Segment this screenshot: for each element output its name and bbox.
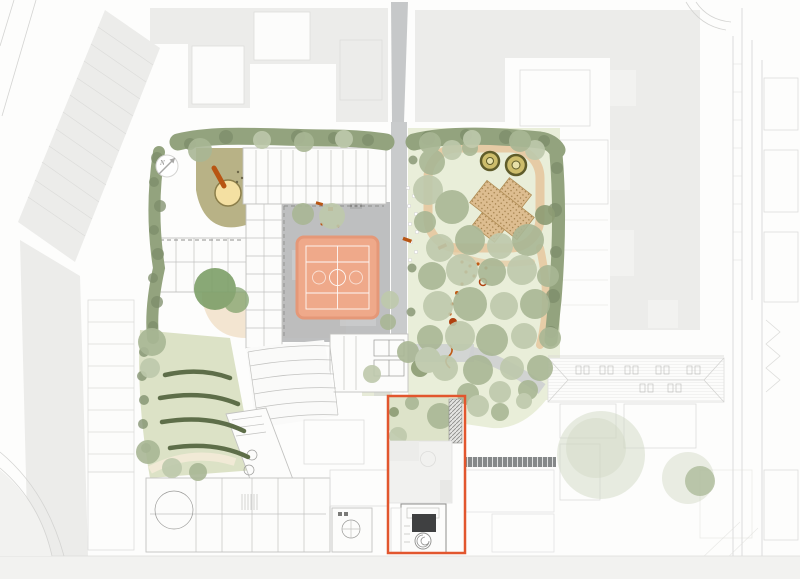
school-south-building bbox=[330, 334, 408, 392]
north-arrow: N bbox=[156, 155, 178, 177]
site-plan-canvas: N bbox=[0, 0, 800, 579]
canopy-building bbox=[466, 457, 556, 552]
north-label: N bbox=[159, 159, 165, 167]
central-path bbox=[391, 122, 407, 348]
hatched-building-strip bbox=[449, 399, 462, 443]
street-alley-north bbox=[391, 2, 408, 122]
stair-core bbox=[412, 514, 436, 532]
terrace-block-northwest bbox=[0, 0, 160, 262]
site-plan-page: N bbox=[0, 0, 800, 579]
street-west bbox=[20, 240, 134, 556]
block-north bbox=[150, 8, 388, 122]
basketball-court bbox=[297, 237, 378, 318]
school-north-wing bbox=[243, 148, 386, 204]
plot-building bbox=[391, 504, 446, 553]
